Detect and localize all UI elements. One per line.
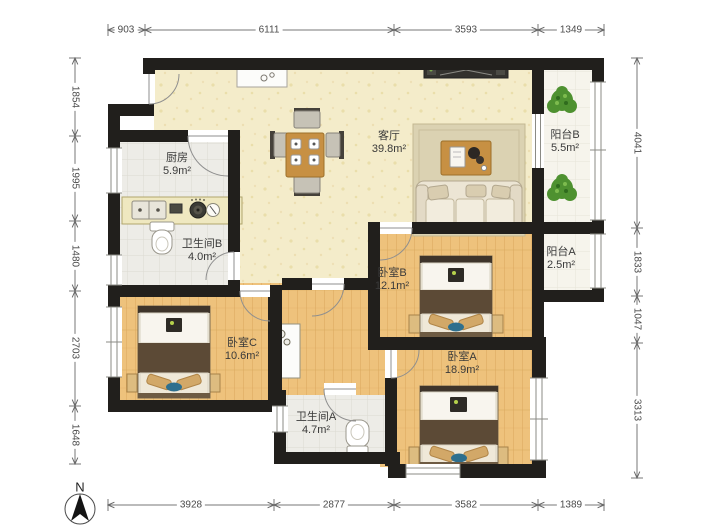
dim-left-4: 2703: [70, 334, 81, 362]
kitchen-counter: [122, 197, 242, 224]
bathroom-a-window: [272, 406, 288, 432]
dim-right-2: 1833: [632, 248, 643, 276]
dim-left-1: 1854: [70, 83, 81, 111]
sideboard: [237, 69, 287, 87]
dim-bottom-3: 3582: [452, 500, 480, 511]
kitchen-window: [106, 148, 122, 193]
bed-b: [409, 256, 503, 337]
bedroom-a-bottom-window: [406, 464, 460, 478]
dim-right-1: 4041: [632, 129, 643, 157]
bedroom-a-side-window: [530, 378, 548, 460]
dim-left-2: 1995: [70, 164, 81, 192]
north-compass: [65, 494, 95, 524]
toilet-a: [346, 420, 369, 454]
dim-top-1: 903: [115, 25, 138, 36]
dim-top-3: 3593: [452, 25, 480, 36]
dim-left-3: 1480: [70, 242, 81, 270]
dim-left-5: 1648: [70, 421, 81, 449]
dim-bottom-4: 1389: [557, 500, 585, 511]
bathroom-a-floor: [286, 395, 385, 452]
balcony-b-sliding-door: [532, 114, 544, 168]
north-label: N: [75, 480, 84, 495]
dim-top-2: 6111: [256, 25, 283, 36]
bed-c: [127, 306, 220, 398]
toilet-b: [150, 222, 174, 254]
bedroom-c-window: [106, 307, 122, 377]
floor-plan-page: 厨房 5.9m² 卫生间B 4.0m² 客厅 39.8m² 阳台B 5.5m² …: [0, 0, 710, 532]
balcony-a-window: [590, 234, 606, 288]
bed-a: [409, 386, 508, 467]
dim-bottom-1: 3928: [177, 500, 205, 511]
bathroom-b-window: [106, 255, 122, 285]
dim-bottom-2: 2877: [320, 500, 348, 511]
coffee-table: [441, 141, 491, 175]
dim-right-3: 1047: [632, 305, 643, 333]
dim-top-4: 1349: [557, 25, 585, 36]
kitchen-appliance: [170, 204, 182, 213]
floor-plan-drawing: [0, 0, 710, 532]
dim-right-4: 3313: [632, 396, 643, 424]
balcony-b-window: [590, 82, 606, 220]
